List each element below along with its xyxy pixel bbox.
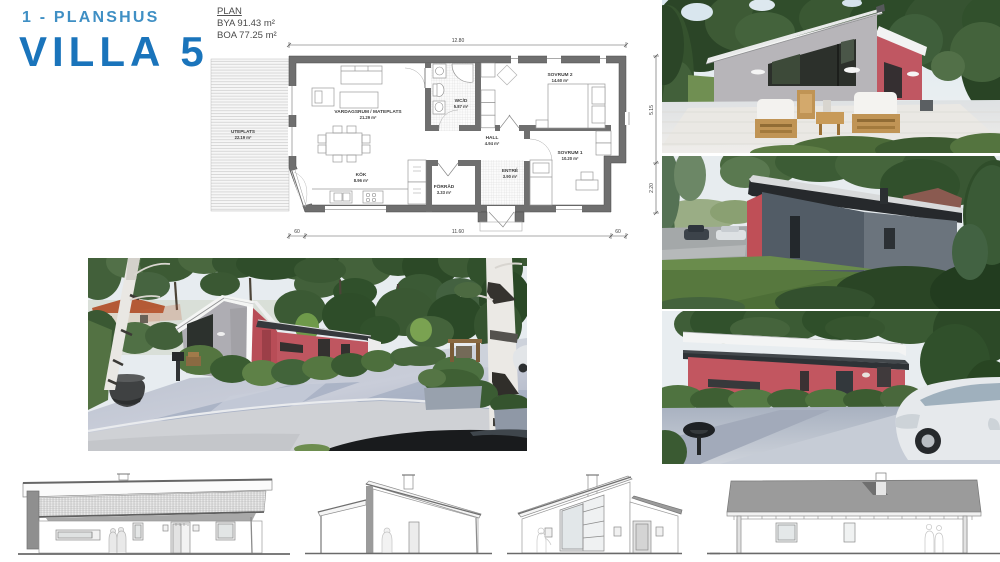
svg-text:KÖK: KÖK: [356, 171, 367, 178]
svg-text:3.33 m²: 3.33 m²: [437, 190, 452, 195]
svg-text:22.19 m²: 22.19 m²: [235, 135, 252, 140]
svg-text:21.29 m²: 21.29 m²: [360, 115, 377, 120]
svg-text:FÖRRÅD: FÖRRÅD: [434, 183, 455, 190]
svg-text:BYA 91.43 m²: BYA 91.43 m²: [217, 18, 275, 29]
svg-text:5.87 m²: 5.87 m²: [454, 104, 469, 109]
svg-text:2.20: 2.20: [649, 183, 655, 193]
svg-text:VILLA 5: VILLA 5: [19, 28, 209, 75]
svg-text:14.60 m²: 14.60 m²: [552, 78, 569, 83]
svg-text:12.80: 12.80: [452, 38, 465, 44]
svg-text:5.15: 5.15: [649, 105, 655, 115]
svg-text:60: 60: [294, 229, 300, 235]
svg-text:60: 60: [615, 229, 621, 235]
svg-text:PLAN: PLAN: [217, 6, 242, 17]
svg-text:4.94 m²: 4.94 m²: [485, 141, 500, 146]
svg-text:8.96 m²: 8.96 m²: [354, 178, 369, 183]
svg-text:11.60: 11.60: [452, 229, 464, 235]
svg-text:10.20 m²: 10.20 m²: [562, 156, 579, 161]
svg-text:UTEPLATS: UTEPLATS: [231, 129, 255, 134]
svg-text:BOA 77.25 m²: BOA 77.25 m²: [217, 30, 277, 41]
svg-text:3.90 m²: 3.90 m²: [503, 174, 518, 179]
svg-text:1 - PLANSHUS: 1 - PLANSHUS: [22, 9, 160, 26]
